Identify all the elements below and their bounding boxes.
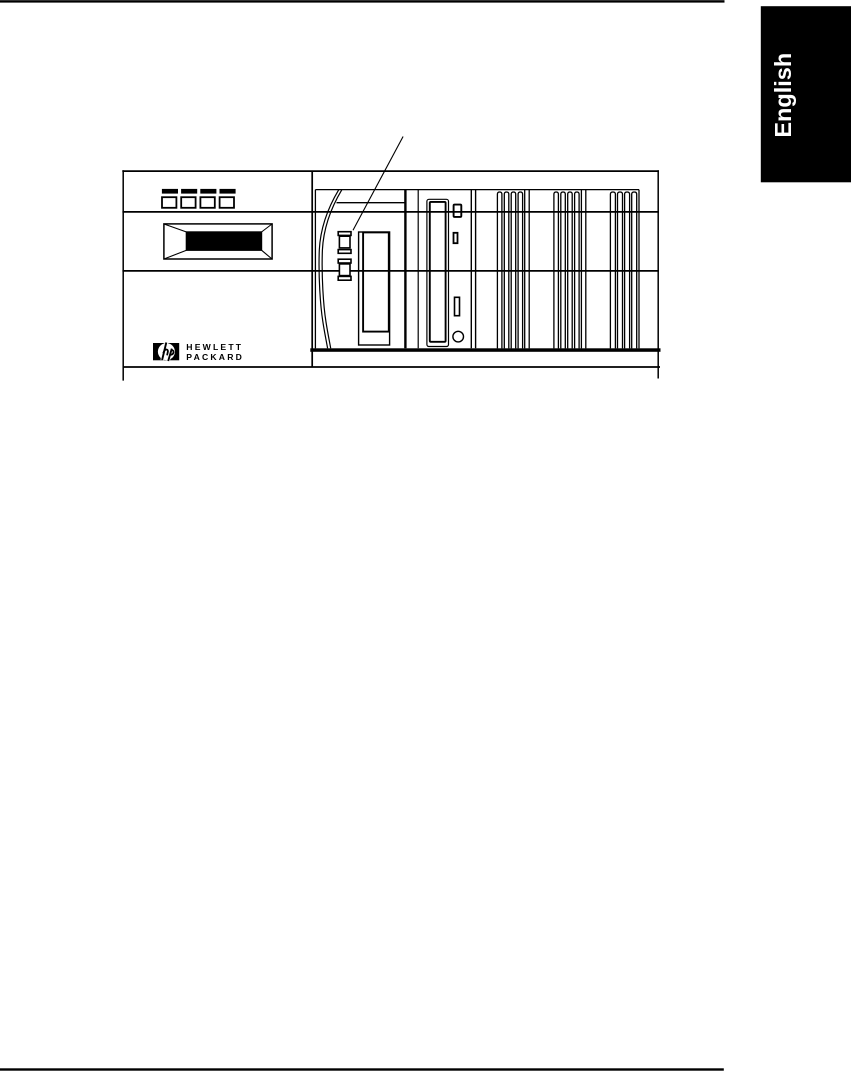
svg-text:HEWLETT: HEWLETT [186, 342, 243, 352]
svg-text:PACKARD: PACKARD [186, 352, 244, 362]
svg-text:English: English [770, 53, 796, 138]
